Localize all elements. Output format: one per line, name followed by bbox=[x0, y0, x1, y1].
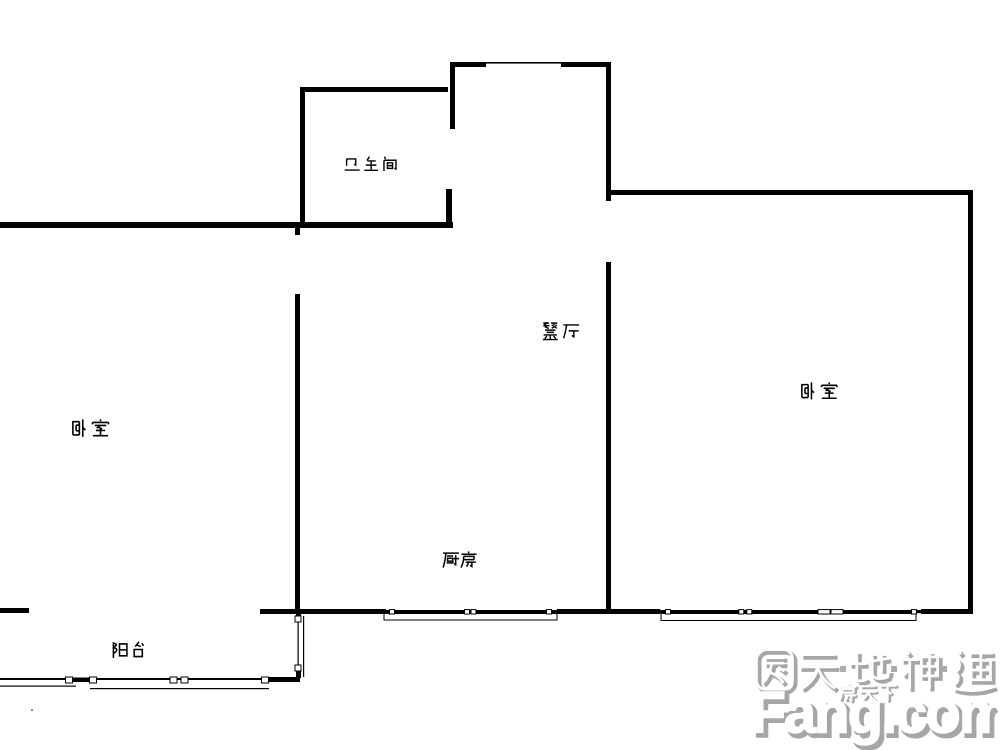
svg-text:Fang.com: Fang.com bbox=[751, 681, 1000, 746]
